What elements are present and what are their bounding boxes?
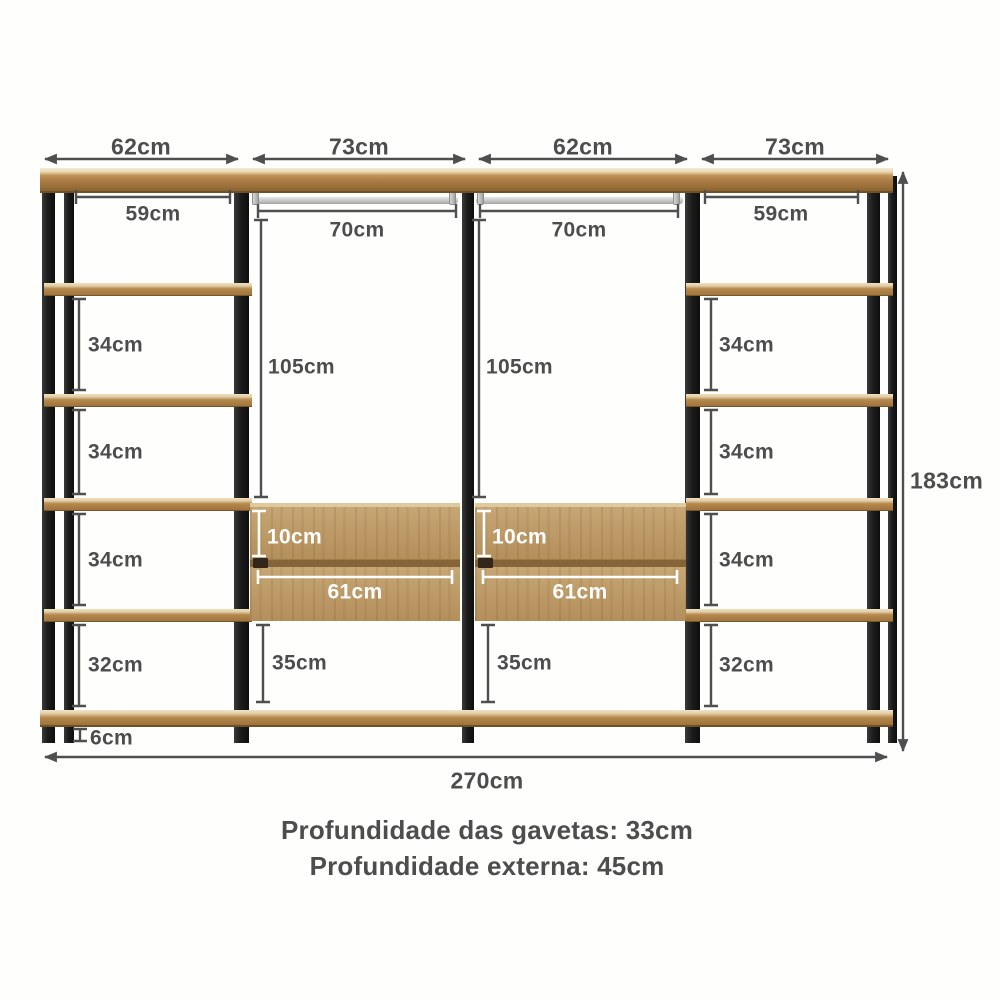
- shelf: [686, 498, 893, 511]
- dim-label-below-drawer-right: 35cm: [497, 653, 552, 674]
- dim-label-drawer-height-left: 10cm: [267, 527, 322, 548]
- dim-label-section3-width: 62cm: [553, 136, 613, 159]
- dim-label-total-width: 270cm: [450, 770, 523, 793]
- dim-label-drawer-width-left: 61cm: [328, 582, 383, 603]
- shelf: [686, 394, 893, 407]
- shelf: [44, 498, 252, 511]
- frame-post: [234, 176, 249, 743]
- dim-label-shelf-width-right: 59cm: [754, 204, 809, 225]
- dim-label-rod-width-left: 70cm: [330, 220, 385, 241]
- dim-label-floor-gap: 6cm: [90, 728, 133, 749]
- drawer-handle-notch: [478, 558, 493, 568]
- dim-label-section2-width: 73cm: [329, 136, 389, 159]
- shelf: [686, 609, 893, 622]
- dim-label-shelf-width-left: 59cm: [126, 204, 181, 225]
- shelf: [44, 609, 252, 622]
- frame-post: [42, 176, 55, 743]
- gray-dimensions: [45, 159, 903, 757]
- frame-post: [867, 176, 880, 743]
- dim-label-right-gap-3: 34cm: [719, 550, 774, 571]
- dim-left-column-gaps: [72, 299, 87, 741]
- shelf: [686, 283, 893, 296]
- shelf: [44, 394, 252, 407]
- dim-label-right-gap-4: 32cm: [719, 655, 774, 676]
- hanging-rod: [476, 197, 683, 204]
- dim-label-left-gap-2: 34cm: [88, 442, 143, 463]
- frame-post: [888, 176, 897, 743]
- drawer-gap: [250, 560, 460, 567]
- dim-label-below-drawer-left: 35cm: [272, 653, 327, 674]
- dim-label-hang-height-left: 105cm: [268, 357, 335, 378]
- dim-label-left-gap-4: 32cm: [88, 655, 143, 676]
- hanging-rod: [252, 197, 458, 204]
- frame-post: [685, 176, 700, 743]
- bottom-shelf: [40, 710, 893, 727]
- dim-label-right-gap-1: 34cm: [719, 335, 774, 356]
- dim-label-section1-width: 62cm: [111, 136, 171, 159]
- shelf: [44, 283, 252, 296]
- drawer-gap: [475, 560, 686, 567]
- dim-label-total-height: 183cm: [910, 470, 983, 493]
- dim-label-drawer-height-right: 10cm: [492, 527, 547, 548]
- frame-post: [64, 176, 74, 743]
- dim-label-rod-width-right: 70cm: [552, 220, 607, 241]
- closet-dimension-diagram: 62cm 73cm 62cm 73cm 59cm 70cm 70cm 59cm …: [0, 0, 1000, 1000]
- caption-drawer-depth: Profundidade das gavetas: 33cm: [281, 817, 693, 843]
- dim-label-drawer-width-right: 61cm: [553, 582, 608, 603]
- dim-label-section4-width: 73cm: [765, 136, 825, 159]
- frame-post: [462, 176, 474, 743]
- dim-label-left-gap-1: 34cm: [88, 335, 143, 356]
- drawer-handle-notch: [253, 558, 268, 568]
- caption-external-depth: Profundidade externa: 45cm: [310, 853, 665, 879]
- dim-label-right-gap-2: 34cm: [719, 442, 774, 463]
- top-shelf: [40, 168, 893, 193]
- dim-label-left-gap-3: 34cm: [88, 550, 143, 571]
- dim-label-hang-height-right: 105cm: [486, 357, 553, 378]
